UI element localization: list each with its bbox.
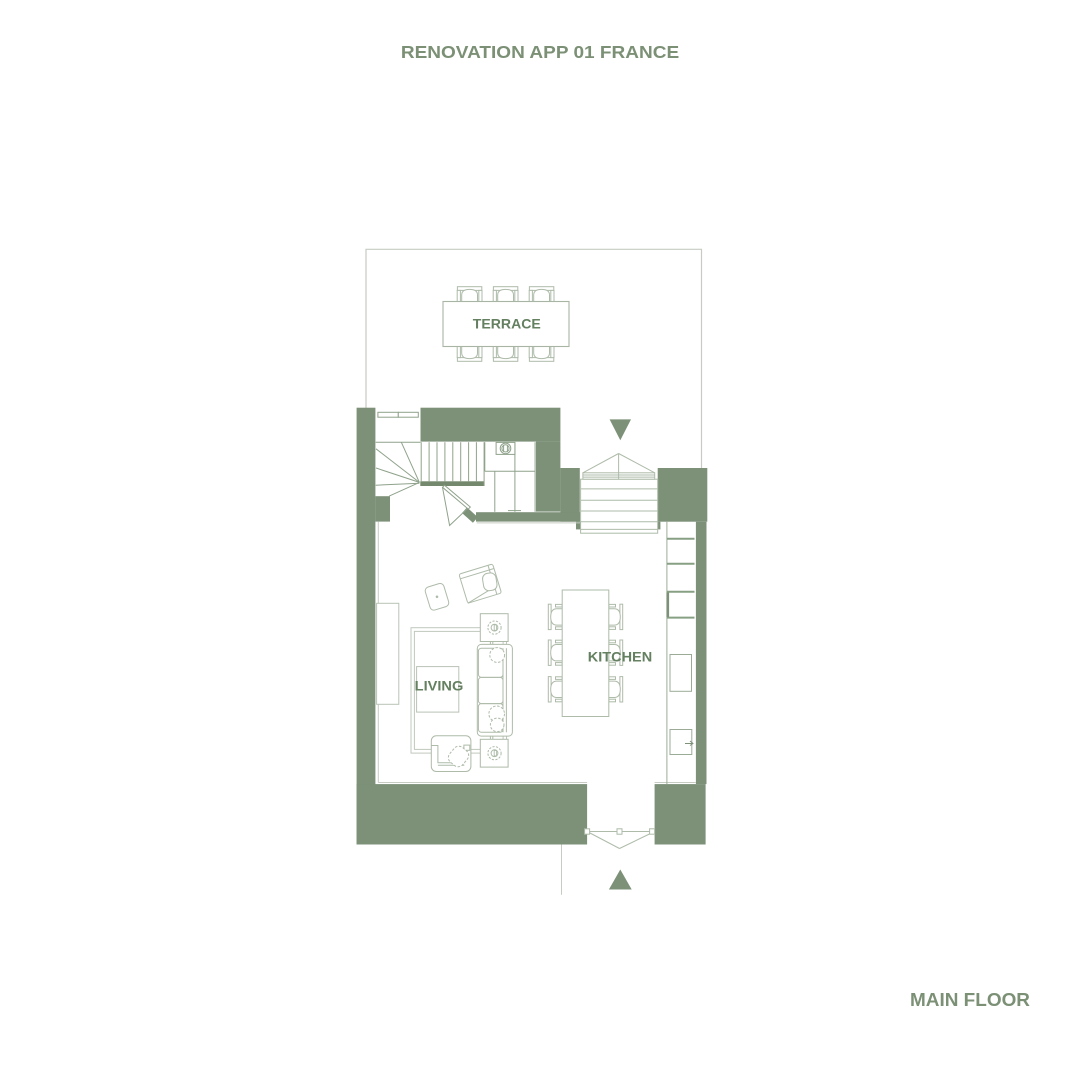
svg-text:RENOVATION APP 01 FRANCE: RENOVATION APP 01 FRANCE [401, 42, 679, 62]
svg-text:LIVING: LIVING [415, 678, 464, 694]
svg-text:MAIN FLOOR: MAIN FLOOR [910, 989, 1030, 1010]
svg-text:KITCHEN: KITCHEN [588, 649, 652, 665]
svg-text:TERRACE: TERRACE [473, 316, 541, 331]
